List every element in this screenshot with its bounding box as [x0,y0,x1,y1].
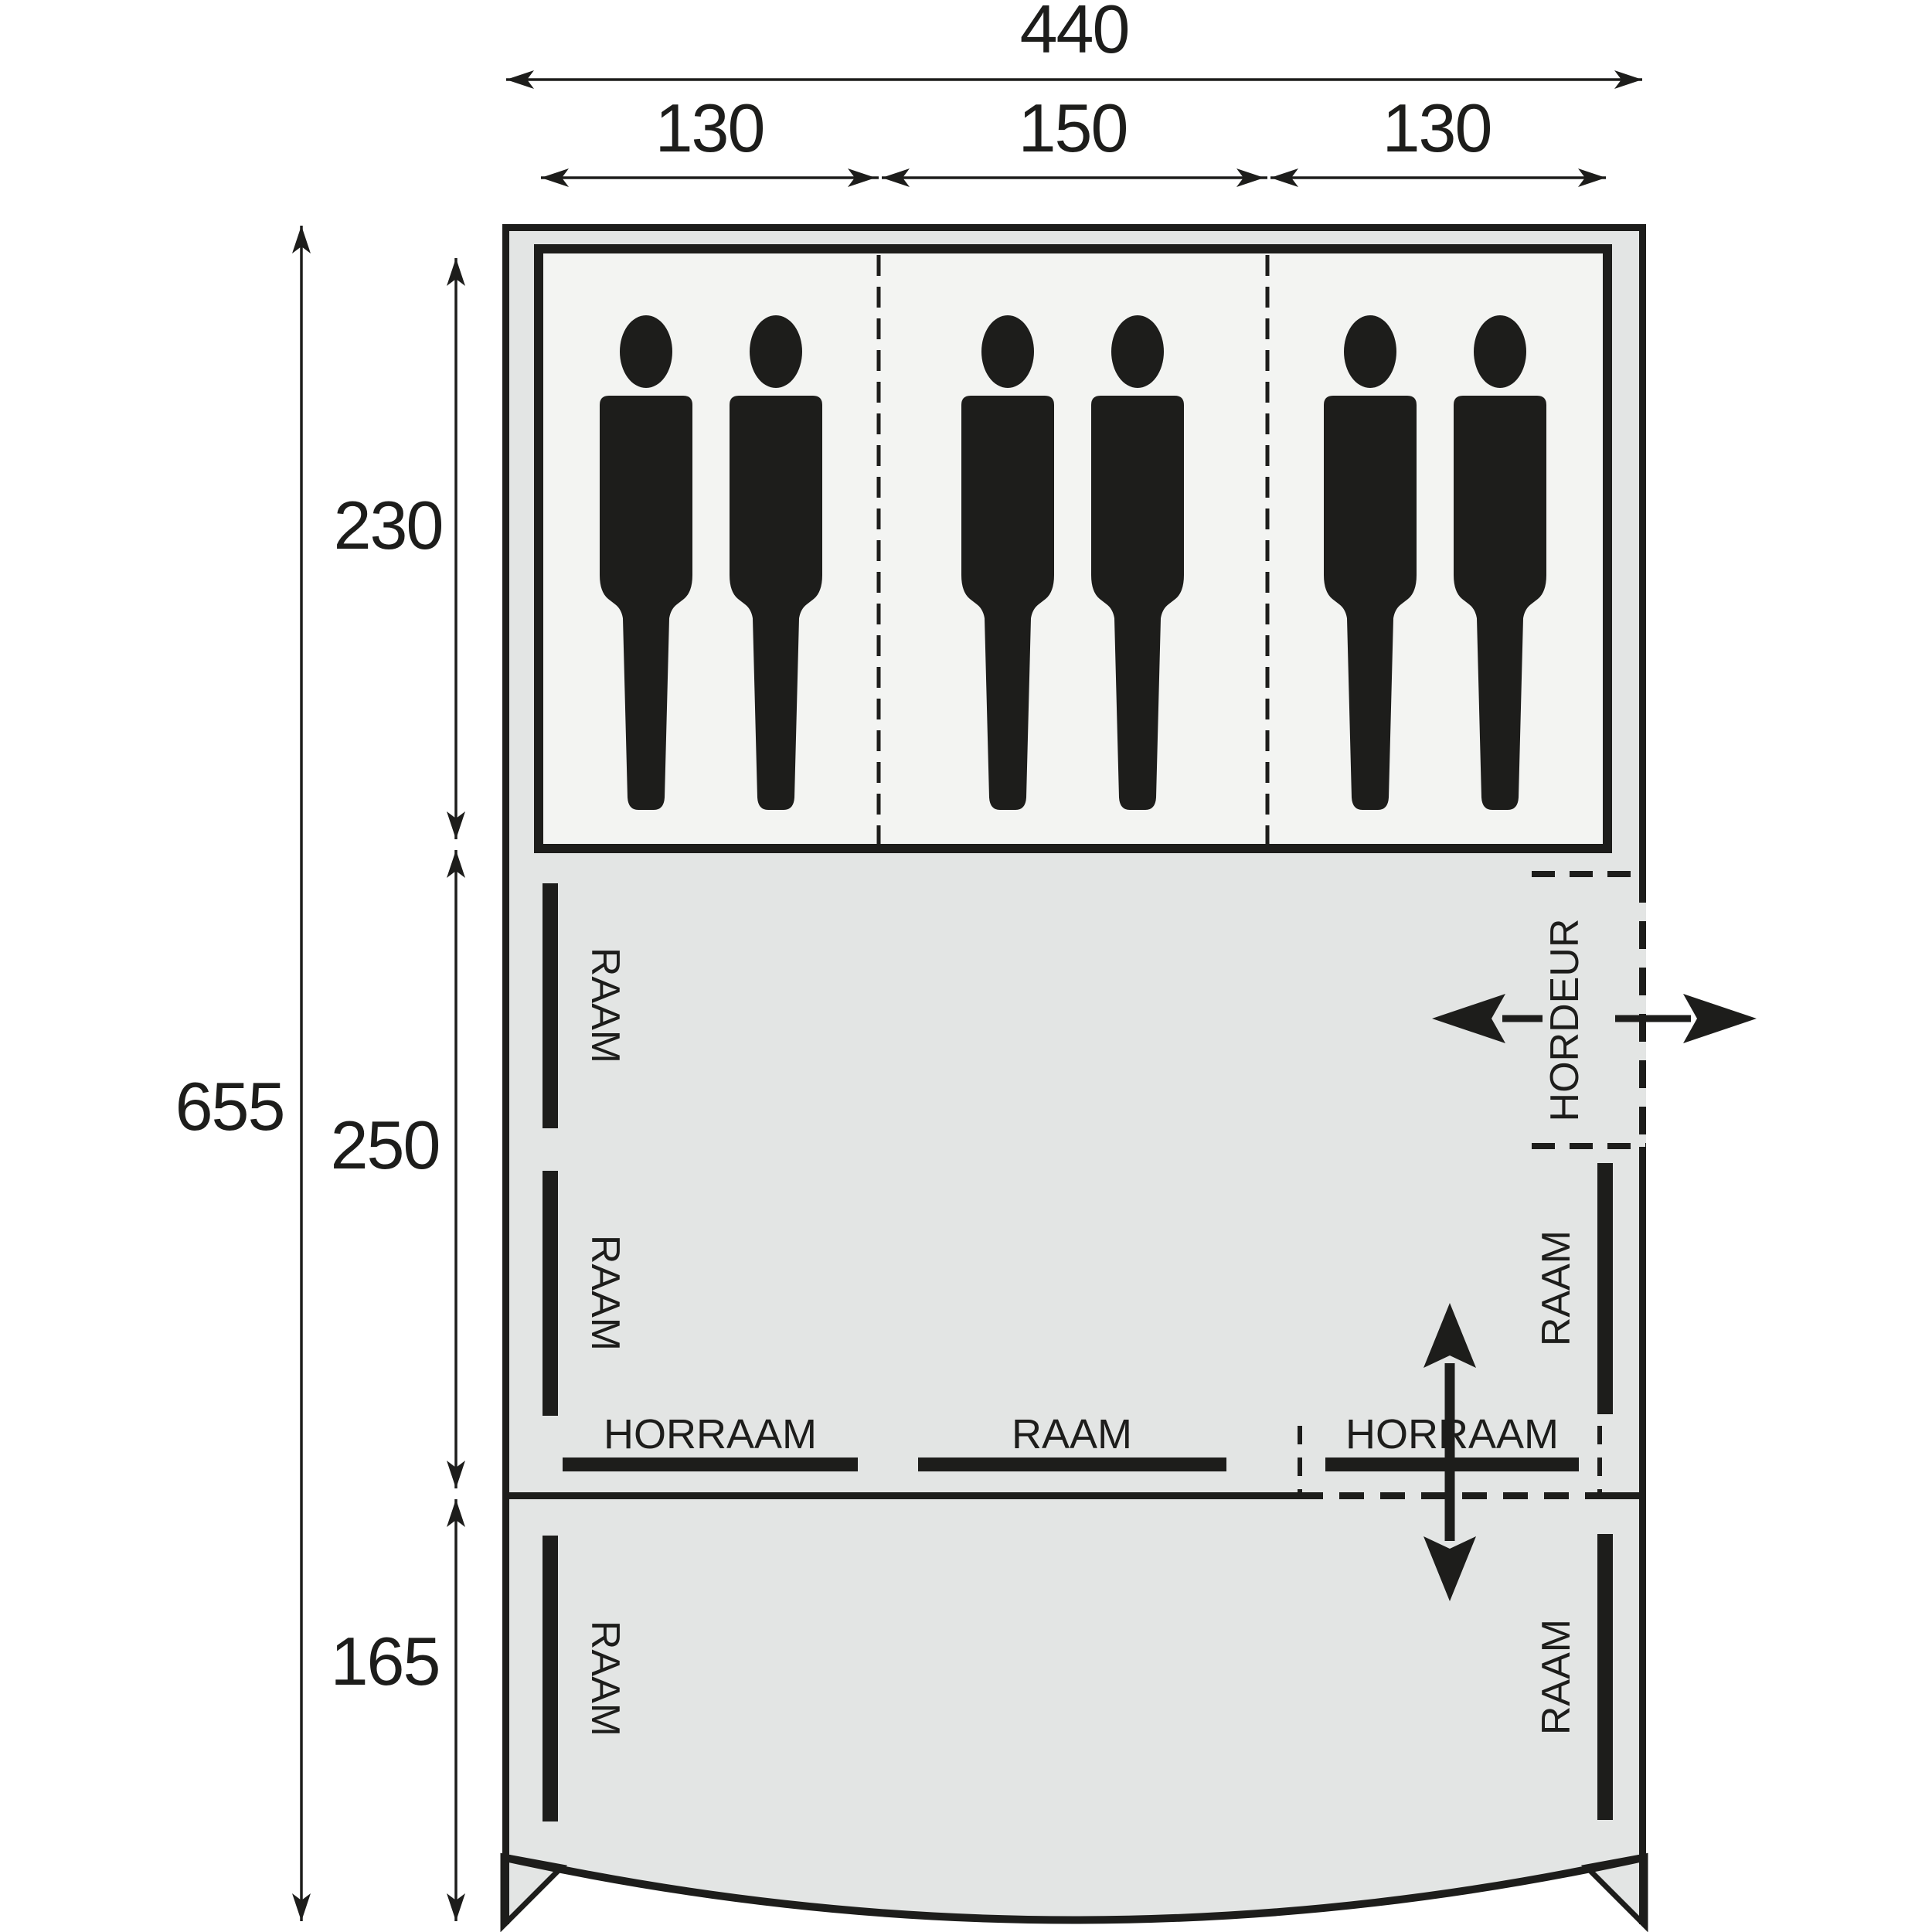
window-bar-bottom-right [1325,1458,1579,1471]
dim-total-width-value: 440 [1020,0,1129,67]
window-bar-left-lower [543,1171,558,1416]
mesh-window-label-bottom-left: HORRAAM [604,1411,817,1458]
dim-depth-sections: 230 250 165 [331,258,465,1921]
window-label-left-porch: RAAM [583,1621,628,1736]
dim-cabin-widths: 130 150 130 [541,90,1606,187]
dim-total-width: 440 [506,0,1642,89]
window-bar-bottom-middle [918,1458,1226,1471]
tent-floorplan-page: 440 130 150 130 655 230 250 165 [0,0,1932,1932]
window-bar-right-porch [1597,1534,1613,1820]
dim-living-depth-value: 250 [331,1107,440,1183]
dim-cabin-middle-value: 150 [1019,90,1128,166]
window-label-right-living: RAAM [1534,1230,1579,1346]
window-bar-left-upper [543,883,558,1128]
dim-porch-depth-value: 165 [331,1623,440,1699]
window-bar-bottom-left [563,1458,858,1471]
mesh-door-label: HORDEUR [1543,919,1587,1122]
window-label-left-lower: RAAM [583,1235,628,1351]
dim-cabin-right-value: 130 [1383,90,1492,166]
tent-floorplan-diagram: 440 130 150 130 655 230 250 165 [0,0,1932,1932]
window-label-bottom-middle: RAAM [1012,1411,1132,1458]
window-bar-left-porch [543,1536,558,1821]
sleeping-cabin [539,249,1607,849]
window-bar-right-living [1597,1163,1613,1414]
dim-total-depth: 655 [175,226,311,1921]
window-label-left-upper: RAAM [583,947,628,1063]
dim-sleeping-depth-value: 230 [334,487,443,563]
dim-cabin-left-value: 130 [655,90,764,166]
mesh-window-label-bottom-right: HORRAAM [1345,1411,1559,1458]
window-label-right-porch: RAAM [1534,1619,1579,1735]
door-arrow-right-head [1683,994,1757,1043]
dim-total-depth-value: 655 [175,1068,284,1145]
